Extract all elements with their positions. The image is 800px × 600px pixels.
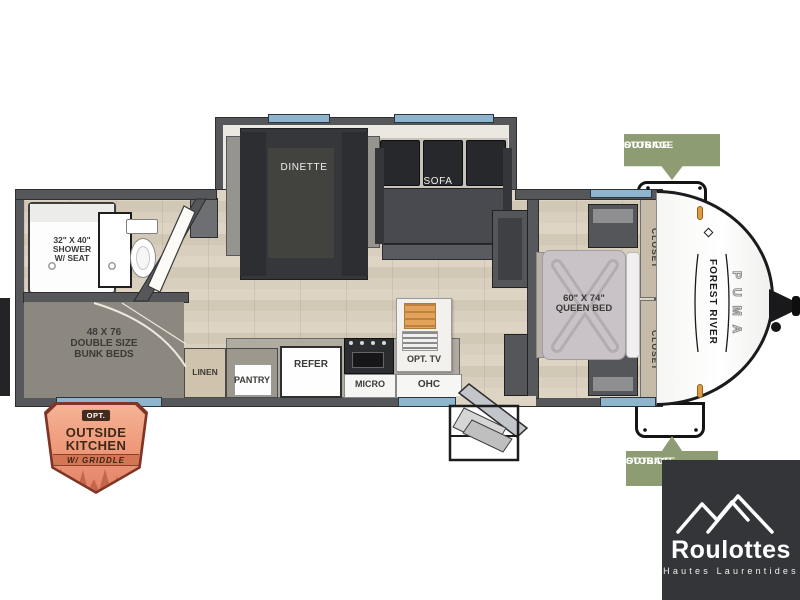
badge-background: OPT. OUTSIDE KITCHEN W/ GRIDDLE bbox=[47, 405, 145, 491]
hitch-coupler bbox=[792, 296, 800, 316]
sofa-seat bbox=[382, 188, 504, 244]
bed-pillow bbox=[626, 252, 640, 358]
sofa-armrest-left bbox=[375, 148, 384, 244]
badge-line2: KITCHEN bbox=[47, 438, 145, 453]
storage-compartment-bottom bbox=[635, 402, 705, 438]
toilet-tank bbox=[126, 219, 158, 234]
entry-door-opening bbox=[456, 396, 536, 406]
range-knob bbox=[360, 341, 364, 345]
lower-cabinet bbox=[504, 334, 528, 396]
tv-vent bbox=[402, 331, 438, 351]
window bbox=[600, 397, 656, 407]
range-knob bbox=[349, 341, 353, 345]
top-wall-rear bbox=[16, 190, 216, 199]
hitch-jack bbox=[771, 322, 781, 332]
hall-cabinet bbox=[190, 198, 218, 238]
sofa-label: SOFA bbox=[408, 176, 468, 187]
grass-icon bbox=[47, 465, 145, 491]
microwave-label: MICRO bbox=[344, 380, 396, 390]
rv-floorplan: DINETTE SOFA 32" X 40" SHOWER W/ SEAT 48… bbox=[0, 0, 800, 600]
window bbox=[398, 397, 456, 407]
outside-storage-banner-top: OUTSIDE STORAGE bbox=[624, 134, 720, 180]
bathroom-bunk-wall bbox=[24, 293, 188, 302]
badge-opt-chip: OPT. bbox=[81, 409, 111, 422]
nightstand-bottom-face bbox=[593, 377, 633, 391]
outside-kitchen-badge: OPT. OUTSIDE KITCHEN W/ GRIDDLE bbox=[44, 402, 148, 494]
dealer-subtitle: Hautes Laurentides bbox=[662, 566, 800, 576]
overhead-cabinet-label: OHC bbox=[396, 380, 462, 391]
opt-tv-label: OPT. TV bbox=[396, 355, 452, 365]
range-knob bbox=[382, 341, 386, 345]
fireplace-insert bbox=[404, 303, 436, 329]
entry-step-tread bbox=[463, 420, 512, 452]
entry-steps-frame bbox=[450, 406, 518, 460]
rear-bumper bbox=[0, 298, 10, 396]
bunk-beds-label: 48 X 76 DOUBLE SIZE BUNK BEDS bbox=[40, 328, 168, 360]
clearance-light bbox=[697, 206, 703, 220]
queen-bed-label: 60" X 74" QUEEN BED bbox=[544, 294, 624, 315]
dealer-logo: Roulottes Hautes Laurentides bbox=[662, 460, 800, 600]
dinette-bench-left bbox=[240, 132, 266, 276]
linen-label: LINEN bbox=[184, 368, 226, 377]
sofa-back-cushion bbox=[466, 140, 506, 186]
toilet-bowl bbox=[136, 246, 150, 270]
entry-step-tread bbox=[453, 408, 506, 447]
oven-window bbox=[352, 352, 384, 368]
mountains-icon bbox=[672, 482, 790, 538]
pantry-label: PANTRY bbox=[226, 376, 278, 386]
clearance-light bbox=[697, 384, 703, 398]
nightstand-top-face bbox=[593, 209, 633, 223]
refrigerator-label: REFER bbox=[282, 360, 340, 371]
brand-text: FOREST RIVER bbox=[700, 244, 718, 360]
window bbox=[590, 189, 652, 198]
entertainment-cabinet-front bbox=[498, 218, 522, 280]
window bbox=[268, 114, 330, 123]
range-knob bbox=[371, 341, 375, 345]
dealer-name: Roulottes bbox=[662, 536, 800, 565]
refrigerator bbox=[280, 346, 342, 398]
model-text: PUMA bbox=[726, 248, 744, 366]
dinette-bench-right bbox=[342, 132, 368, 276]
sofa-front bbox=[382, 244, 504, 260]
window bbox=[394, 114, 494, 123]
dinette-label: DINETTE bbox=[262, 162, 346, 173]
